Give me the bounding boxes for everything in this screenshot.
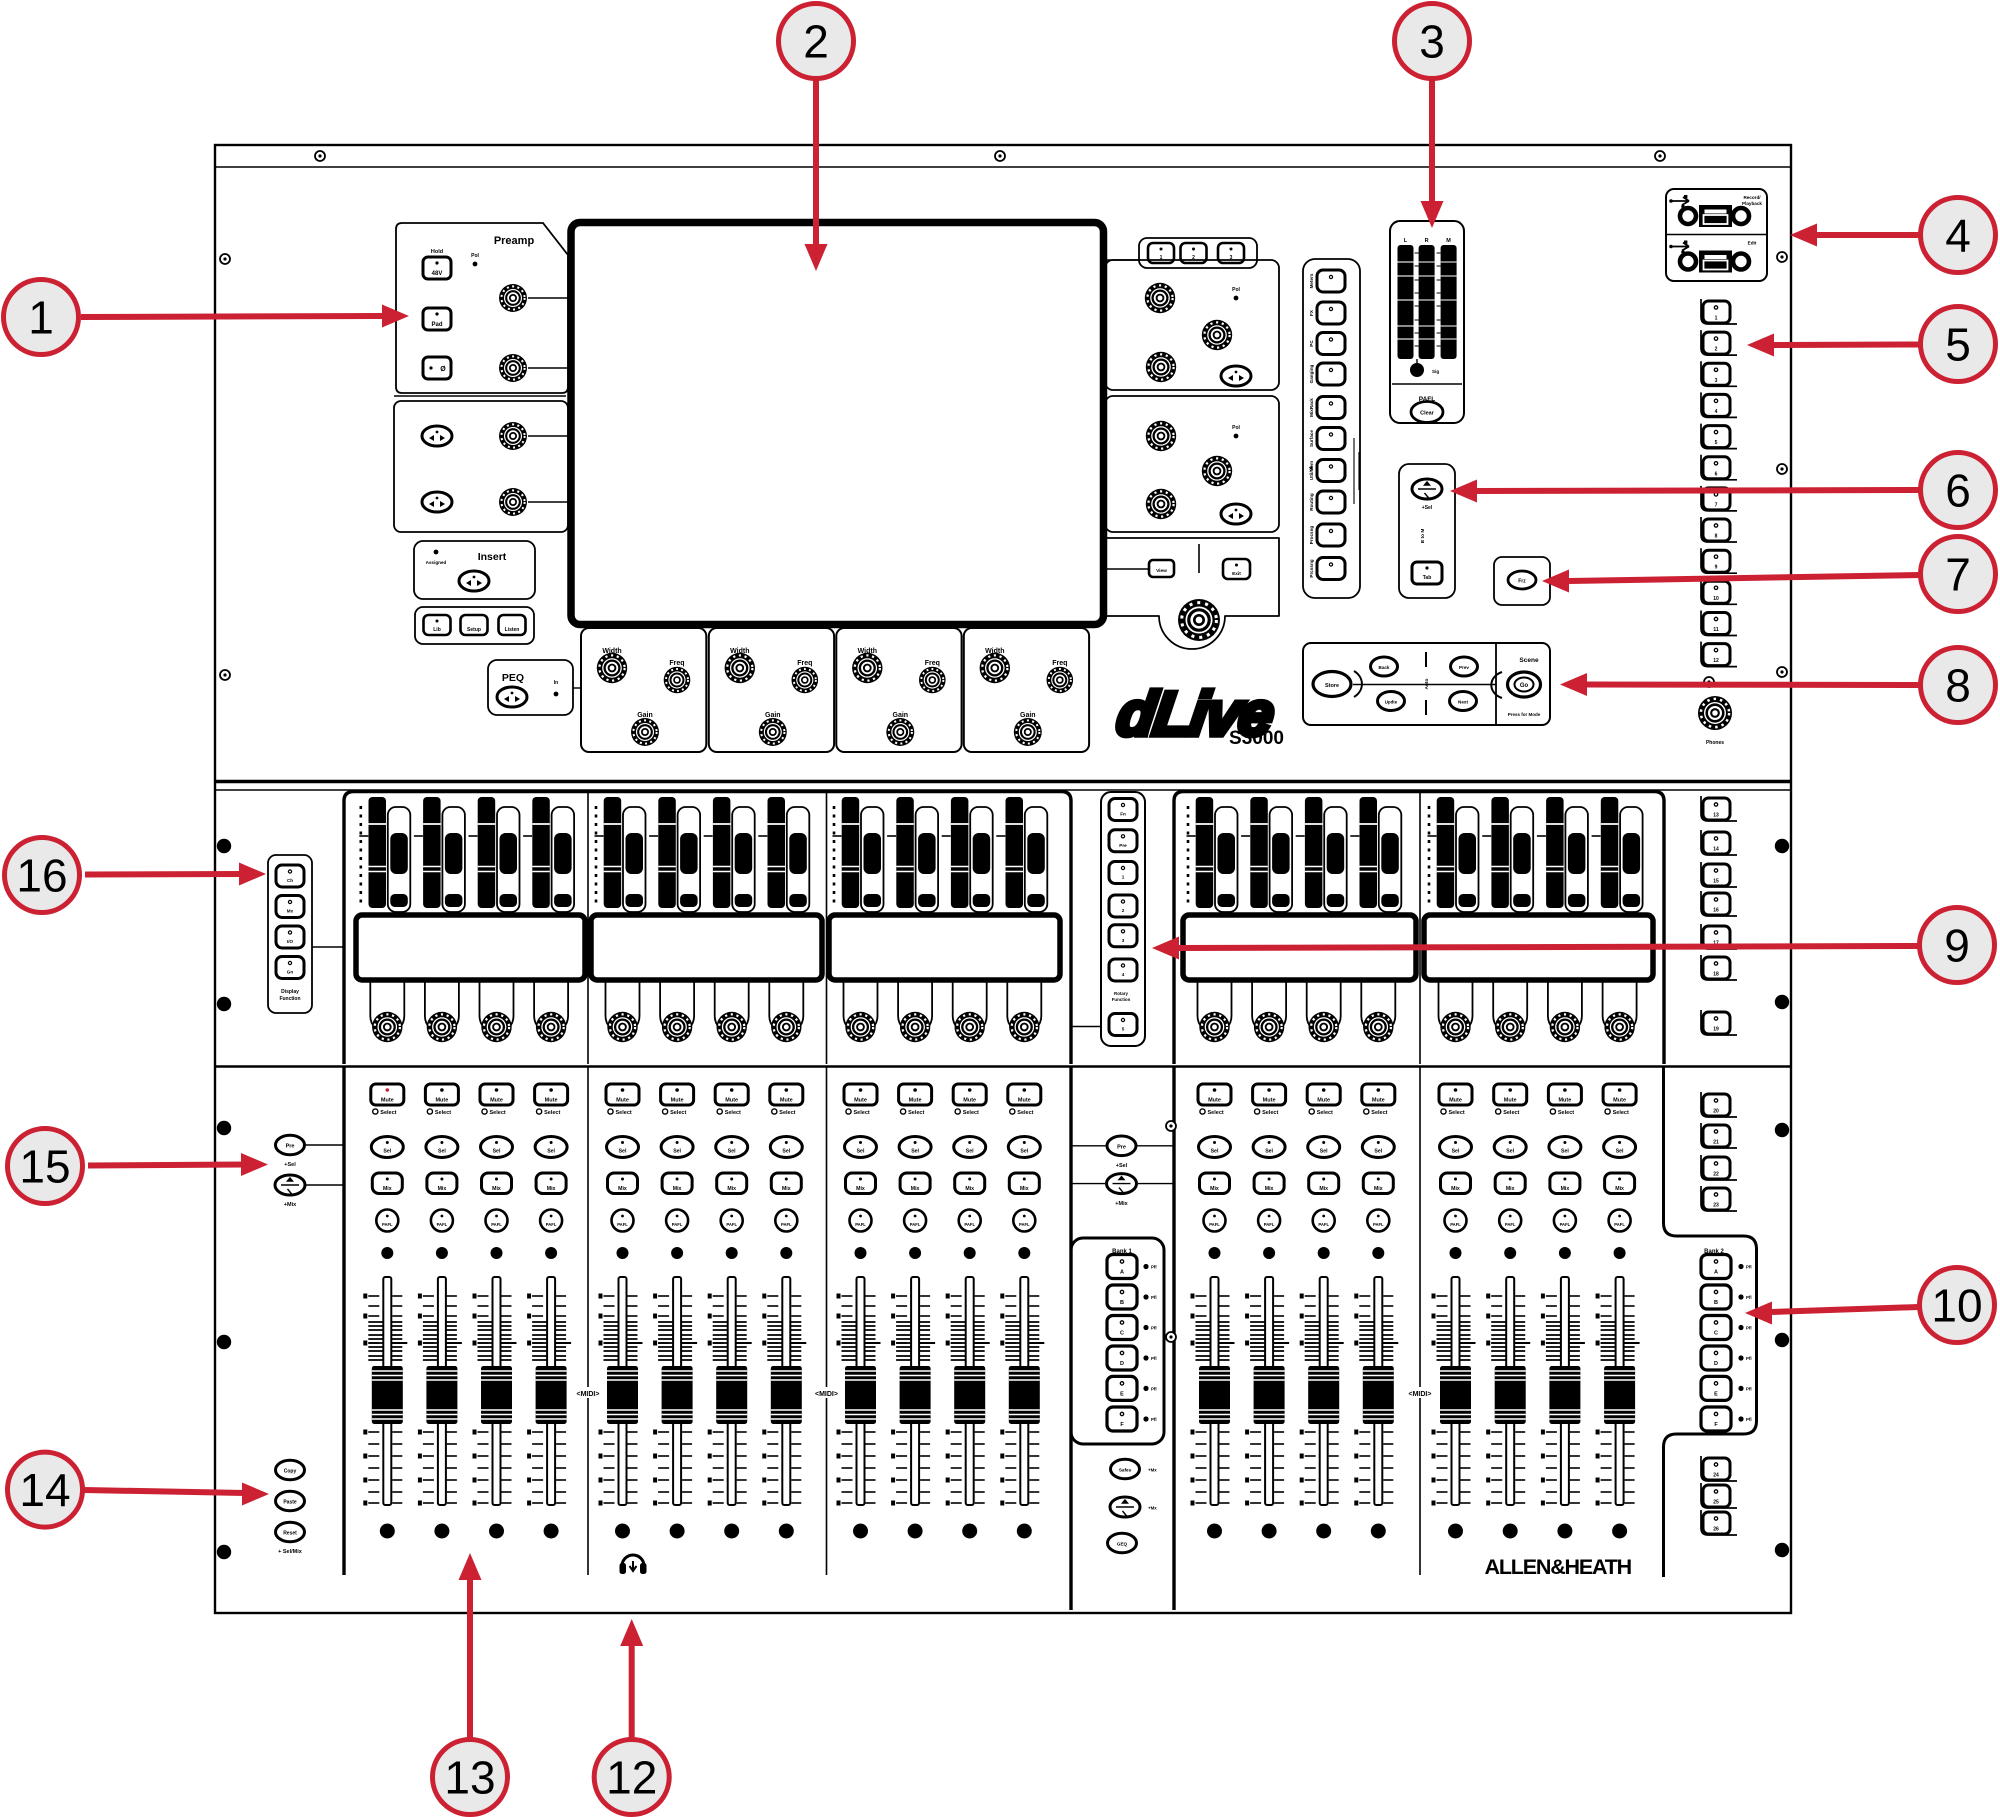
svg-text:Pfl: Pfl	[1151, 1356, 1157, 1361]
svg-text:Mute: Mute	[381, 1098, 394, 1104]
svg-text:PAFL: PAFL	[1264, 1222, 1275, 1227]
svg-text:1: 1	[1715, 316, 1718, 322]
svg-text:Tab: Tab	[1423, 575, 1432, 581]
svg-text:Freq: Freq	[797, 660, 812, 667]
svg-text:Mute: Mute	[909, 1098, 922, 1104]
svg-text:<MIDI>: <MIDI>	[577, 1391, 600, 1398]
svg-text:Select: Select	[616, 1110, 632, 1116]
svg-text:Freq: Freq	[925, 660, 940, 667]
svg-text:Mix: Mix	[782, 1186, 791, 1192]
svg-text:1: 1	[28, 292, 54, 344]
svg-text:Pfl: Pfl	[1746, 1417, 1752, 1422]
svg-text:Sel: Sel	[1616, 1149, 1624, 1155]
svg-text:GEQ: GEQ	[1117, 1542, 1128, 1547]
svg-text:Prcssng: Prcssng	[1309, 559, 1314, 577]
svg-text:Select: Select	[1503, 1110, 1519, 1116]
svg-text:22: 22	[1713, 1172, 1719, 1178]
svg-text:Sel: Sel	[911, 1149, 919, 1155]
svg-text:Pfl: Pfl	[1746, 1356, 1752, 1361]
svg-text:Mx: Mx	[287, 909, 294, 914]
svg-text:Select: Select	[1017, 1110, 1033, 1116]
svg-text:PAFL: PAFL	[781, 1222, 792, 1227]
svg-text:Select: Select	[779, 1110, 795, 1116]
svg-text:Sel: Sel	[383, 1149, 391, 1155]
svg-text:14: 14	[1713, 847, 1719, 853]
svg-text:Paste: Paste	[283, 1500, 297, 1506]
svg-text:Sel: Sel	[857, 1149, 865, 1155]
svg-text:Back: Back	[1379, 665, 1390, 670]
svg-text:Pol: Pol	[1232, 425, 1240, 431]
svg-text:+Mix: +Mix	[284, 1202, 297, 1208]
svg-text:Go: Go	[1520, 683, 1529, 689]
svg-text:A: A	[1714, 1270, 1718, 1276]
svg-text:Lib: Lib	[433, 627, 441, 633]
svg-text:In: In	[554, 680, 558, 686]
svg-text:Sig: Sig	[1432, 369, 1439, 374]
svg-text:Select: Select	[435, 1110, 451, 1116]
svg-text:Edit: Edit	[1748, 241, 1757, 246]
svg-text:7: 7	[1715, 502, 1718, 508]
svg-text:Gain: Gain	[1020, 712, 1036, 719]
svg-text:Procsng: Procsng	[1309, 526, 1314, 545]
svg-text:7: 7	[1945, 549, 1971, 601]
svg-text:B to M: B to M	[1420, 529, 1426, 544]
svg-text:Exit: Exit	[1232, 571, 1241, 577]
svg-text:Surface: Surface	[1309, 430, 1314, 447]
svg-text:Mute: Mute	[435, 1098, 448, 1104]
svg-text:13: 13	[1713, 813, 1719, 819]
svg-text:Pfl: Pfl	[1746, 1265, 1752, 1270]
svg-text:+Mix: +Mix	[1115, 1201, 1128, 1207]
svg-text:View: View	[1156, 568, 1167, 574]
svg-text:PAFL: PAFL	[1318, 1222, 1329, 1227]
svg-text:Pfl: Pfl	[1151, 1386, 1157, 1391]
svg-text:Select: Select	[725, 1110, 741, 1116]
svg-text:Mix: Mix	[1319, 1186, 1328, 1192]
svg-text:9: 9	[1944, 920, 1970, 972]
svg-text:12: 12	[1713, 658, 1719, 664]
svg-text:Mix: Mix	[727, 1186, 736, 1192]
svg-text:Sel: Sel	[782, 1149, 790, 1155]
svg-text:Select: Select	[1449, 1110, 1465, 1116]
svg-text:Mute: Mute	[963, 1098, 976, 1104]
svg-text:E: E	[1120, 1391, 1124, 1397]
svg-text:Mute: Mute	[616, 1098, 629, 1104]
svg-text:14: 14	[19, 1464, 70, 1516]
svg-text:Next: Next	[1458, 700, 1468, 705]
svg-text:Pfl: Pfl	[1746, 1326, 1752, 1331]
svg-text:B: B	[1714, 1300, 1718, 1306]
svg-text:S3000: S3000	[1229, 728, 1284, 749]
svg-text:Sel: Sel	[619, 1149, 627, 1155]
svg-text:PEQ: PEQ	[502, 672, 524, 684]
svg-text:Function: Function	[1112, 997, 1131, 1002]
svg-text:Record/: Record/	[1743, 195, 1761, 200]
svg-text:5: 5	[1715, 440, 1718, 446]
svg-text:Sel: Sel	[438, 1149, 446, 1155]
svg-text:Mute: Mute	[1263, 1098, 1276, 1104]
svg-text:Mix: Mix	[1265, 1186, 1274, 1192]
svg-text:16: 16	[1713, 908, 1719, 914]
svg-text:Frz: Frz	[1518, 579, 1526, 585]
svg-text:Gn: Gn	[287, 970, 294, 975]
svg-text:3: 3	[1122, 938, 1125, 943]
svg-text:PAFL: PAFL	[672, 1222, 683, 1227]
svg-text:12: 12	[606, 1752, 657, 1804]
svg-text:10: 10	[1713, 596, 1719, 602]
svg-text:Mix: Mix	[1561, 1186, 1570, 1192]
svg-text:48V: 48V	[432, 271, 443, 277]
svg-text:1: 1	[1122, 875, 1125, 880]
svg-text:Press for Mode: Press for Mode	[1508, 712, 1541, 717]
svg-text:Mute: Mute	[1613, 1098, 1626, 1104]
svg-text:E: E	[1714, 1391, 1718, 1397]
svg-text:Sel: Sel	[1320, 1149, 1328, 1155]
svg-text:+ Sel/Mix: + Sel/Mix	[278, 1549, 303, 1555]
svg-text:Freq: Freq	[1052, 660, 1067, 667]
svg-text:26: 26	[1713, 1527, 1719, 1533]
svg-text:8: 8	[1715, 534, 1718, 540]
svg-text:Select: Select	[963, 1110, 979, 1116]
svg-text:Select: Select	[854, 1110, 870, 1116]
svg-text:4: 4	[1945, 210, 1971, 262]
svg-text:Mix: Mix	[1374, 1186, 1383, 1192]
svg-text:Mix: Mix	[618, 1186, 627, 1192]
svg-text:Setup: Setup	[467, 627, 481, 633]
svg-text:B: B	[1120, 1300, 1124, 1306]
svg-text:Pfl: Pfl	[1151, 1417, 1157, 1422]
svg-text:21: 21	[1713, 1140, 1719, 1146]
svg-text:Auto: Auto	[1424, 678, 1430, 689]
svg-text:15: 15	[19, 1141, 70, 1193]
svg-text:23: 23	[1713, 1203, 1719, 1209]
svg-text:Sel: Sel	[1452, 1149, 1460, 1155]
svg-text:Reset: Reset	[283, 1531, 297, 1537]
svg-text:Mute: Mute	[1449, 1098, 1462, 1104]
svg-text:Sel: Sel	[1265, 1149, 1273, 1155]
svg-text:Function: Function	[279, 996, 300, 1002]
svg-text:Pfl: Pfl	[1151, 1326, 1157, 1331]
svg-text:Select: Select	[908, 1110, 924, 1116]
svg-text:+Sel: +Sel	[284, 1162, 296, 1168]
svg-text:Select: Select	[380, 1110, 396, 1116]
svg-text:Sel: Sel	[547, 1149, 555, 1155]
svg-text:Sel: Sel	[1561, 1149, 1569, 1155]
svg-text:PAFL: PAFL	[964, 1222, 975, 1227]
svg-text:PAFL: PAFL	[726, 1222, 737, 1227]
svg-text:R: R	[1425, 238, 1429, 244]
svg-text:Mix: Mix	[383, 1186, 392, 1192]
svg-text:Ø: Ø	[440, 366, 446, 373]
svg-text:Mix: Mix	[1210, 1186, 1219, 1192]
svg-text:Sel: Sel	[493, 1149, 501, 1155]
svg-text:PAFL: PAFL	[910, 1222, 921, 1227]
svg-text:Listen: Listen	[505, 627, 520, 633]
svg-text:3: 3	[1715, 378, 1718, 384]
svg-text:Mute: Mute	[1558, 1098, 1571, 1104]
svg-text:Pre: Pre	[1119, 843, 1127, 848]
svg-text:4: 4	[1715, 409, 1718, 415]
svg-text:15: 15	[1713, 879, 1719, 885]
svg-text:Mix: Mix	[1020, 1186, 1029, 1192]
svg-text:PAFL: PAFL	[546, 1222, 557, 1227]
svg-text:Insert: Insert	[478, 551, 507, 563]
svg-text:Select: Select	[1558, 1110, 1574, 1116]
svg-text:Freq: Freq	[669, 660, 684, 667]
svg-text:Pfl: Pfl	[1746, 1386, 1752, 1391]
svg-text:PAFL: PAFL	[1209, 1222, 1220, 1227]
svg-text:Pre: Pre	[286, 1144, 295, 1150]
svg-text:Phones: Phones	[1706, 740, 1724, 746]
svg-text:Mix: Mix	[1506, 1186, 1515, 1192]
svg-text:Mute: Mute	[1504, 1098, 1517, 1104]
svg-text:Pad: Pad	[431, 322, 442, 328]
svg-text:Mute: Mute	[1372, 1098, 1385, 1104]
svg-text:+Sel: +Sel	[1422, 505, 1433, 511]
svg-text:Meters: Meters	[1309, 273, 1314, 288]
svg-text:Sel: Sel	[1211, 1149, 1219, 1155]
svg-text:20: 20	[1713, 1109, 1719, 1115]
svg-text:Mute: Mute	[490, 1098, 503, 1104]
svg-text:Gain: Gain	[893, 712, 909, 719]
svg-text:Mute: Mute	[780, 1098, 793, 1104]
svg-text:Pfl: Pfl	[1151, 1295, 1157, 1300]
svg-text:Ganging: Ganging	[1309, 364, 1314, 383]
svg-text:5: 5	[1945, 319, 1971, 371]
svg-text:Pol: Pol	[471, 253, 479, 259]
svg-text:Select: Select	[1262, 1110, 1278, 1116]
svg-text:6: 6	[1715, 471, 1718, 477]
svg-text:Sel: Sel	[966, 1149, 974, 1155]
svg-text:+Sel: +Sel	[1116, 1163, 1128, 1169]
svg-text:Mute: Mute	[725, 1098, 738, 1104]
svg-text:5: 5	[1122, 1027, 1125, 1032]
svg-text:Select: Select	[1371, 1110, 1387, 1116]
svg-text:ALLEN&HEATH: ALLEN&HEATH	[1485, 1555, 1632, 1579]
svg-text:FX: FX	[1309, 309, 1314, 316]
svg-text:PAFL: PAFL	[1614, 1222, 1625, 1227]
svg-text:D: D	[1714, 1361, 1718, 1367]
svg-text:PAFL: PAFL	[855, 1222, 866, 1227]
svg-text:Mix: Mix	[547, 1186, 556, 1192]
svg-text:19: 19	[1713, 1027, 1719, 1033]
svg-text:Sel: Sel	[1506, 1149, 1514, 1155]
svg-text:M: M	[1446, 238, 1451, 244]
svg-text:PAFL: PAFL	[1019, 1222, 1030, 1227]
svg-text:Mix: Mix	[965, 1186, 974, 1192]
svg-text:Hold: Hold	[431, 249, 443, 255]
svg-text:2: 2	[1715, 347, 1718, 353]
svg-text:Sel: Sel	[1020, 1149, 1028, 1155]
svg-text:Updte: Updte	[1385, 700, 1398, 705]
svg-text:I/O: I/O	[287, 939, 294, 944]
svg-text:Mix: Mix	[911, 1186, 920, 1192]
svg-text:Pol: Pol	[1232, 287, 1240, 293]
svg-text:Select: Select	[544, 1110, 560, 1116]
svg-text:PAFL: PAFL	[437, 1222, 448, 1227]
svg-text:+Mx: +Mx	[1148, 1468, 1157, 1473]
svg-text:Select: Select	[1208, 1110, 1224, 1116]
svg-text:Sel: Sel	[673, 1149, 681, 1155]
svg-text:Mute: Mute	[1208, 1098, 1221, 1104]
svg-text:Store: Store	[1325, 683, 1339, 689]
svg-text:+Mx: +Mx	[1148, 1506, 1157, 1511]
svg-text:Copy: Copy	[284, 1469, 297, 1475]
svg-text:Mute: Mute	[854, 1098, 867, 1104]
svg-text:PAFL: PAFL	[617, 1222, 628, 1227]
svg-text:Display: Display	[281, 989, 299, 995]
svg-text:<MIDI>: <MIDI>	[1409, 1391, 1432, 1398]
svg-text:*: *	[1309, 465, 1313, 476]
svg-text:PAFL: PAFL	[1560, 1222, 1571, 1227]
svg-text:Mute: Mute	[671, 1098, 684, 1104]
svg-text:Select: Select	[1613, 1110, 1629, 1116]
svg-text:PAFL: PAFL	[491, 1222, 502, 1227]
svg-text:A: A	[1120, 1270, 1124, 1276]
svg-text:Gain: Gain	[765, 712, 781, 719]
svg-text:PC: PC	[1309, 340, 1314, 347]
svg-text:Mute: Mute	[1317, 1098, 1330, 1104]
svg-text:<MIDI>: <MIDI>	[815, 1391, 838, 1398]
svg-text:PAFL: PAFL	[1373, 1222, 1384, 1227]
svg-text:18: 18	[1713, 972, 1719, 978]
svg-text:Select: Select	[490, 1110, 506, 1116]
svg-text:Mix: Mix	[492, 1186, 501, 1192]
svg-text:Mute: Mute	[1018, 1098, 1031, 1104]
svg-text:Select: Select	[670, 1110, 686, 1116]
svg-text:Safes: Safes	[1119, 1468, 1132, 1473]
svg-text:2: 2	[803, 16, 829, 68]
svg-text:16: 16	[16, 850, 67, 902]
svg-text:Scene: Scene	[1519, 657, 1539, 664]
svg-text:MixRack: MixRack	[1309, 398, 1314, 417]
svg-text:Ch: Ch	[287, 878, 293, 883]
svg-text:PAFL: PAFL	[1450, 1222, 1461, 1227]
svg-text:Gain: Gain	[637, 712, 653, 719]
svg-text:Pfl: Pfl	[1746, 1295, 1752, 1300]
svg-text:Mix: Mix	[856, 1186, 865, 1192]
svg-text:Select: Select	[1317, 1110, 1333, 1116]
svg-text:C: C	[1120, 1331, 1124, 1337]
svg-text:25: 25	[1713, 1500, 1719, 1506]
svg-text:Mix: Mix	[673, 1186, 682, 1192]
svg-text:PAFL: PAFL	[1505, 1222, 1516, 1227]
svg-text:Mix: Mix	[1451, 1186, 1460, 1192]
svg-text:2: 2	[1122, 908, 1125, 913]
svg-text:Assigned: Assigned	[426, 560, 447, 565]
svg-text:Rotary: Rotary	[1114, 991, 1128, 996]
svg-text:Preamp: Preamp	[494, 235, 535, 247]
svg-text:Pre: Pre	[1117, 1144, 1126, 1150]
svg-text:Clear: Clear	[1420, 411, 1435, 417]
svg-text:Mix: Mix	[438, 1186, 447, 1192]
svg-text:13: 13	[444, 1752, 495, 1804]
svg-text:10: 10	[1931, 1280, 1982, 1332]
svg-text:11: 11	[1713, 627, 1719, 633]
svg-text:Prev: Prev	[1459, 665, 1469, 670]
svg-text:Mute: Mute	[545, 1098, 558, 1104]
svg-text:6: 6	[1945, 465, 1971, 517]
svg-text:4: 4	[1122, 972, 1125, 977]
svg-text:Sel: Sel	[728, 1149, 736, 1155]
svg-text:C: C	[1714, 1331, 1718, 1337]
svg-text:PAFL: PAFL	[382, 1222, 393, 1227]
svg-text:Playback: Playback	[1742, 201, 1762, 206]
svg-text:Sel: Sel	[1374, 1149, 1382, 1155]
svg-text:3: 3	[1419, 16, 1445, 68]
svg-text:Pfl: Pfl	[1151, 1265, 1157, 1270]
svg-text:D: D	[1120, 1361, 1124, 1367]
svg-text:8: 8	[1945, 660, 1971, 712]
svg-text:24: 24	[1713, 1473, 1719, 1479]
svg-text:Mix: Mix	[1615, 1186, 1624, 1192]
svg-text:9: 9	[1715, 565, 1718, 571]
svg-text:Routing: Routing	[1309, 493, 1314, 511]
svg-text:Fn: Fn	[1120, 812, 1126, 817]
